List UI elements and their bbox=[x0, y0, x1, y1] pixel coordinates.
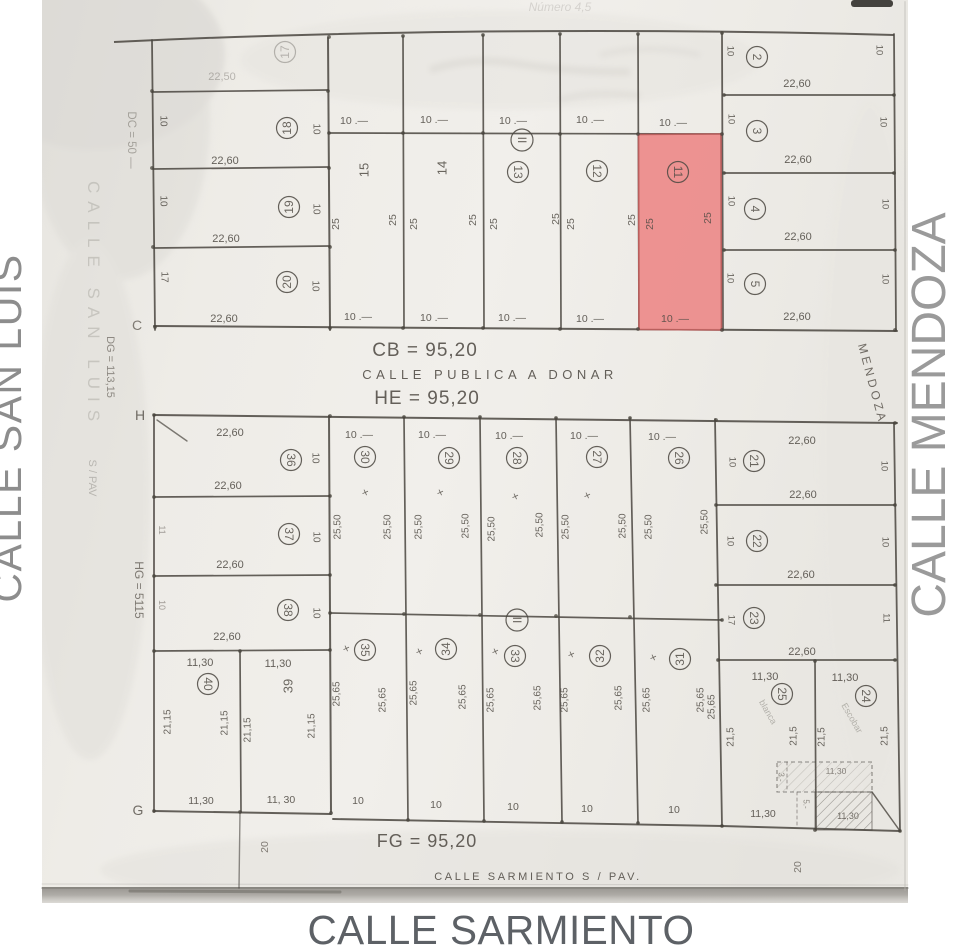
svg-text:10 .—: 10 .— bbox=[499, 115, 528, 127]
svg-text:10: 10 bbox=[311, 123, 322, 135]
svg-text:10: 10 bbox=[352, 795, 364, 807]
svg-text:22,50: 22,50 bbox=[208, 71, 236, 83]
svg-text:CALLE SARMIENTO: CALLE SARMIENTO bbox=[307, 907, 694, 950]
svg-text:11: 11 bbox=[881, 613, 892, 623]
svg-text:33: 33 bbox=[508, 649, 522, 663]
svg-text:22,60: 22,60 bbox=[210, 313, 238, 325]
svg-text:10: 10 bbox=[157, 600, 167, 610]
svg-text:13: 13 bbox=[511, 165, 525, 179]
svg-text:25: 25 bbox=[488, 218, 500, 230]
svg-text:25,65: 25,65 bbox=[332, 681, 343, 706]
svg-text:21,5: 21,5 bbox=[880, 726, 891, 746]
svg-text:10: 10 bbox=[311, 607, 322, 619]
svg-text:25,65: 25,65 bbox=[458, 684, 469, 709]
svg-text:10: 10 bbox=[158, 195, 169, 207]
svg-text:25,65: 25,65 bbox=[533, 685, 544, 710]
svg-text:25: 25 bbox=[330, 218, 342, 230]
svg-text:11,30: 11,30 bbox=[832, 672, 859, 684]
svg-text:22,60: 22,60 bbox=[214, 480, 242, 492]
svg-text:10 .—: 10 .— bbox=[418, 429, 447, 441]
svg-text:2: 2 bbox=[750, 54, 764, 61]
svg-text:DC = 50 —: DC = 50 — bbox=[125, 111, 137, 169]
svg-text:11,30: 11,30 bbox=[188, 795, 214, 807]
svg-text:25,65: 25,65 bbox=[486, 687, 497, 712]
svg-text:22,60: 22,60 bbox=[211, 155, 239, 167]
svg-text:21,15: 21,15 bbox=[307, 713, 318, 738]
svg-text:25,65: 25,65 bbox=[378, 687, 389, 712]
svg-text:II: II bbox=[515, 137, 529, 144]
svg-text:10: 10 bbox=[310, 280, 321, 292]
svg-text:CALLE PUBLICA A DONAR: CALLE PUBLICA A DONAR bbox=[362, 367, 618, 382]
svg-text:21: 21 bbox=[747, 454, 761, 468]
svg-text:10 .—: 10 .— bbox=[495, 430, 524, 442]
svg-text:14: 14 bbox=[435, 161, 450, 175]
svg-text:22,60: 22,60 bbox=[212, 233, 240, 245]
svg-text:3: 3 bbox=[750, 128, 764, 135]
svg-text:10: 10 bbox=[507, 801, 519, 813]
svg-text:11,30: 11,30 bbox=[752, 671, 779, 683]
svg-text:10: 10 bbox=[430, 799, 442, 811]
svg-text:35: 35 bbox=[358, 643, 372, 657]
svg-text:11,30: 11,30 bbox=[750, 808, 776, 820]
svg-text:29: 29 bbox=[442, 451, 456, 465]
svg-text:17: 17 bbox=[726, 615, 737, 626]
svg-text:39: 39 bbox=[281, 679, 296, 693]
svg-text:22,60: 22,60 bbox=[789, 489, 817, 501]
svg-text:10 .—: 10 .— bbox=[576, 313, 605, 325]
svg-text:25: 25 bbox=[702, 212, 714, 224]
svg-text:25,50: 25,50 bbox=[414, 514, 425, 539]
svg-text:10: 10 bbox=[726, 114, 737, 125]
svg-text:25: 25 bbox=[775, 687, 789, 701]
svg-text:25,65: 25,65 bbox=[642, 687, 653, 712]
svg-text:25,50: 25,50 bbox=[561, 514, 572, 539]
svg-text:11,30: 11,30 bbox=[187, 657, 214, 669]
svg-text:25,65: 25,65 bbox=[614, 685, 625, 710]
svg-text:22,60: 22,60 bbox=[784, 154, 812, 166]
svg-text:37: 37 bbox=[282, 527, 296, 541]
svg-text:22,60: 22,60 bbox=[788, 646, 816, 658]
svg-text:HE = 95,20: HE = 95,20 bbox=[374, 388, 480, 409]
svg-text:30: 30 bbox=[358, 450, 372, 464]
svg-text:HG = 5115: HG = 5115 bbox=[132, 561, 146, 619]
svg-text:20: 20 bbox=[280, 275, 294, 289]
svg-text:DG = 113,15: DG = 113,15 bbox=[104, 336, 116, 398]
svg-text:25,65: 25,65 bbox=[707, 694, 718, 719]
svg-text:11: 11 bbox=[671, 166, 685, 179]
svg-text:25: 25 bbox=[565, 218, 577, 230]
svg-text:10: 10 bbox=[725, 536, 736, 547]
svg-text:24: 24 bbox=[859, 689, 873, 703]
svg-text:10: 10 bbox=[310, 452, 321, 464]
svg-text:10: 10 bbox=[880, 274, 891, 285]
svg-text:25: 25 bbox=[644, 218, 656, 230]
svg-text:10 .—: 10 .— bbox=[420, 312, 449, 324]
svg-text:10: 10 bbox=[668, 804, 680, 816]
svg-text:10: 10 bbox=[725, 273, 736, 284]
svg-text:10: 10 bbox=[880, 199, 891, 210]
svg-text:15: 15 bbox=[357, 163, 372, 177]
svg-text:23: 23 bbox=[747, 611, 761, 625]
svg-text:10: 10 bbox=[880, 537, 891, 548]
svg-text:CALLE MENDOZA: CALLE MENDOZA bbox=[903, 212, 956, 617]
svg-text:20: 20 bbox=[259, 841, 271, 853]
svg-text:25,50: 25,50 bbox=[333, 514, 344, 539]
svg-text:10: 10 bbox=[727, 457, 738, 468]
svg-text:19: 19 bbox=[282, 200, 296, 214]
svg-text:10: 10 bbox=[726, 196, 737, 207]
svg-text:22,60: 22,60 bbox=[788, 435, 816, 447]
svg-text:25,50: 25,50 bbox=[535, 512, 546, 537]
svg-text:25: 25 bbox=[467, 214, 479, 226]
svg-text:21,5: 21,5 bbox=[789, 726, 800, 746]
svg-text:25,50: 25,50 bbox=[487, 516, 498, 541]
svg-text:21,5: 21,5 bbox=[726, 727, 737, 747]
svg-text:3.-: 3.- bbox=[777, 772, 786, 782]
svg-text:40: 40 bbox=[201, 677, 215, 691]
svg-text:25,50: 25,50 bbox=[461, 513, 472, 538]
svg-text:11, 30: 11, 30 bbox=[267, 794, 296, 806]
svg-text:20: 20 bbox=[792, 861, 804, 873]
svg-text:22,60: 22,60 bbox=[216, 427, 244, 439]
svg-text:32: 32 bbox=[593, 649, 607, 663]
svg-text:10: 10 bbox=[581, 803, 593, 815]
svg-text:10: 10 bbox=[725, 46, 736, 57]
svg-text:10 .—: 10 .— bbox=[420, 114, 449, 126]
svg-text:G: G bbox=[133, 802, 144, 818]
svg-text:21,15: 21,15 bbox=[243, 717, 254, 742]
svg-text:25,50: 25,50 bbox=[618, 513, 629, 538]
svg-text:17: 17 bbox=[278, 45, 292, 59]
svg-text:10: 10 bbox=[879, 461, 890, 472]
svg-text:5.-: 5.- bbox=[802, 799, 811, 809]
svg-text:26: 26 bbox=[672, 451, 686, 465]
svg-text:10 .—: 10 .— bbox=[498, 312, 527, 324]
svg-text:22,60: 22,60 bbox=[783, 78, 811, 90]
svg-text:4: 4 bbox=[748, 206, 762, 213]
svg-text:21,5: 21,5 bbox=[817, 727, 828, 747]
svg-text:17: 17 bbox=[159, 271, 170, 283]
svg-text:10 .—: 10 .— bbox=[345, 429, 374, 441]
svg-text:25: 25 bbox=[550, 213, 562, 225]
svg-text:11,30: 11,30 bbox=[837, 811, 859, 821]
svg-text:22,60: 22,60 bbox=[787, 569, 815, 581]
svg-text:10 .—: 10 .— bbox=[661, 313, 690, 325]
svg-text:FG = 95,20: FG = 95,20 bbox=[377, 831, 478, 851]
svg-text:10 .—: 10 .— bbox=[344, 311, 373, 323]
svg-text:11: 11 bbox=[157, 525, 167, 534]
svg-text:10 .—: 10 .— bbox=[340, 115, 369, 127]
svg-text:25,50: 25,50 bbox=[644, 514, 655, 539]
svg-text:21,15: 21,15 bbox=[163, 709, 174, 734]
svg-text:CB = 95,20: CB = 95,20 bbox=[372, 340, 478, 361]
svg-text:25: 25 bbox=[408, 218, 420, 230]
svg-text:18: 18 bbox=[280, 121, 294, 135]
svg-text:10: 10 bbox=[878, 117, 889, 128]
svg-text:S / PAV: S / PAV bbox=[86, 460, 98, 498]
svg-text:22,60: 22,60 bbox=[216, 559, 244, 571]
svg-text:II: II bbox=[510, 617, 524, 624]
svg-text:25,65: 25,65 bbox=[696, 687, 707, 712]
svg-text:28: 28 bbox=[510, 451, 524, 465]
svg-text:27: 27 bbox=[590, 450, 604, 464]
svg-text:22,60: 22,60 bbox=[783, 311, 811, 323]
svg-text:H: H bbox=[135, 407, 145, 423]
svg-text:5: 5 bbox=[748, 281, 762, 288]
svg-text:25,50: 25,50 bbox=[700, 509, 711, 534]
svg-text:21,15: 21,15 bbox=[220, 710, 231, 735]
svg-text:34: 34 bbox=[439, 642, 453, 656]
svg-text:10: 10 bbox=[158, 115, 169, 127]
svg-text:22,60: 22,60 bbox=[784, 231, 812, 243]
svg-text:22: 22 bbox=[750, 534, 764, 548]
svg-text:CALLE SAN LUIS: CALLE SAN LUIS bbox=[0, 253, 30, 602]
svg-text:CALLE SAN LUIS: CALLE SAN LUIS bbox=[84, 181, 103, 429]
svg-text:10 .—: 10 .— bbox=[648, 431, 677, 443]
svg-text:C: C bbox=[132, 317, 142, 333]
svg-text:25: 25 bbox=[626, 214, 638, 226]
svg-text:25,50: 25,50 bbox=[383, 514, 394, 539]
svg-text:10: 10 bbox=[311, 203, 322, 215]
svg-text:10 .—: 10 .— bbox=[659, 117, 688, 129]
svg-text:36: 36 bbox=[284, 453, 298, 467]
svg-text:31: 31 bbox=[673, 652, 687, 666]
svg-text:38: 38 bbox=[281, 603, 295, 617]
svg-text:12: 12 bbox=[590, 164, 604, 178]
svg-text:25,65: 25,65 bbox=[409, 680, 420, 705]
svg-text:25: 25 bbox=[387, 214, 399, 226]
svg-text:25,65: 25,65 bbox=[560, 687, 571, 712]
svg-text:10 .—: 10 .— bbox=[576, 114, 605, 126]
svg-text:10: 10 bbox=[311, 531, 322, 543]
svg-text:CALLE SARMIENTO S / PAV.: CALLE SARMIENTO S / PAV. bbox=[434, 871, 642, 883]
svg-text:11,30: 11,30 bbox=[265, 658, 292, 670]
svg-text:11,30: 11,30 bbox=[826, 766, 847, 776]
svg-text:22,60: 22,60 bbox=[213, 631, 241, 643]
svg-text:10: 10 bbox=[874, 45, 885, 56]
svg-text:10 .—: 10 .— bbox=[570, 430, 599, 442]
svg-text:Número 4,5: Número 4,5 bbox=[529, 0, 592, 14]
